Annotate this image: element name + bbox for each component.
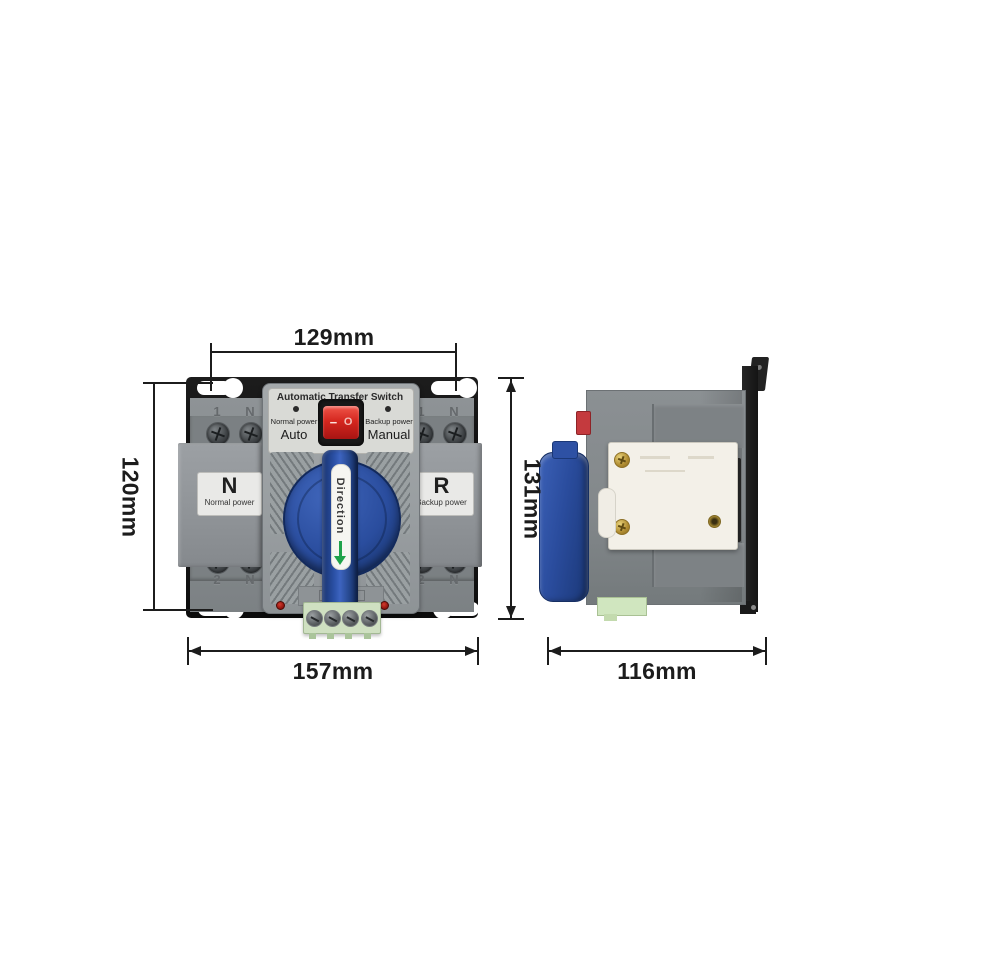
dim-116-arrow-right-icon [753, 646, 765, 656]
dimension-116: 116mm [0, 0, 1000, 974]
dim-116-label: 116mm [548, 658, 766, 685]
product-dimension-diagram: 1 N 1 N 2 N 2 N N Normal power R Backup … [0, 0, 1000, 974]
dim-116-line [548, 650, 766, 652]
dim-116-arrow-left-icon [549, 646, 561, 656]
